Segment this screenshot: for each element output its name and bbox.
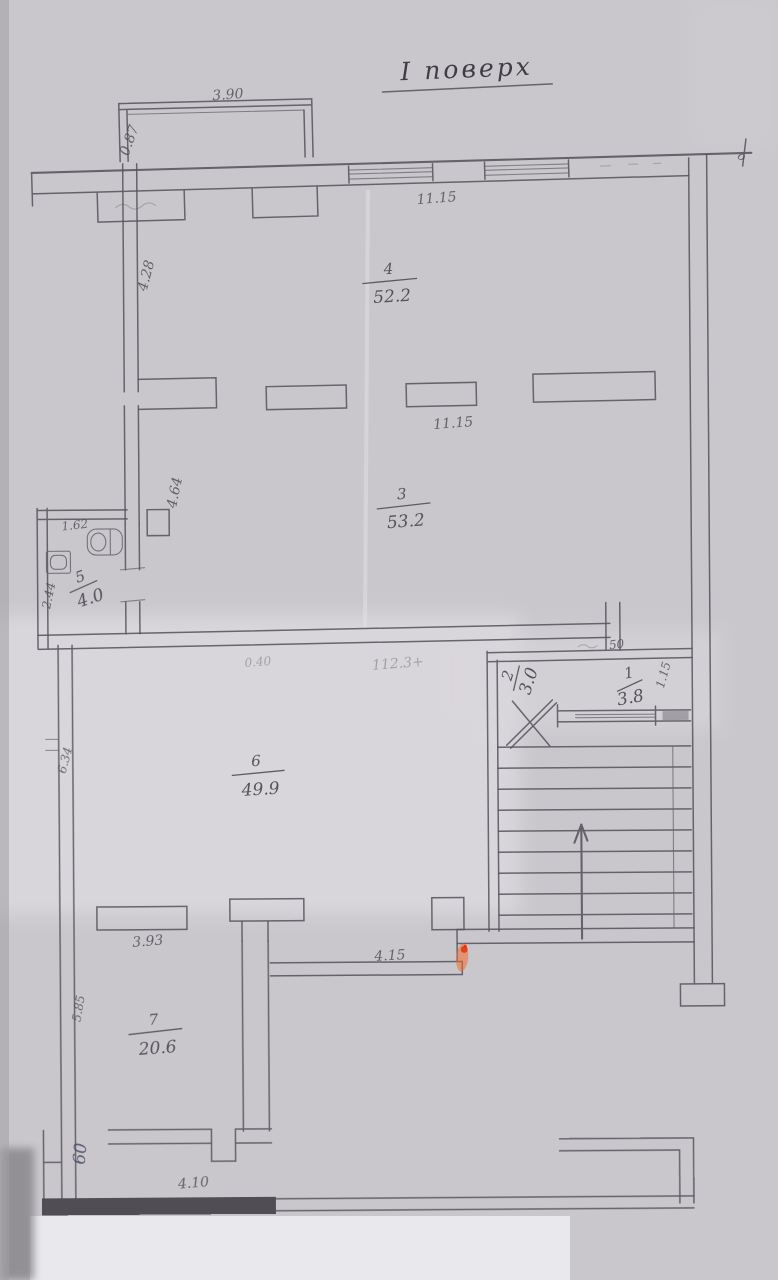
dim-lobby-width: 4.10 [176, 1174, 209, 1192]
dim-balcony-width: 3.90 [212, 86, 244, 104]
dim-mid-wall-run: 11.15 [433, 414, 474, 433]
dim-faint-a: 0.40 [244, 654, 272, 670]
room-3-number: 3 [396, 485, 407, 504]
dim-corridor-width: 4.15 [373, 947, 406, 965]
dim-top-window-run: 11.15 [416, 189, 457, 208]
ink-note: 60 [70, 1142, 92, 1165]
room-4-area: 52.2 [373, 286, 412, 308]
room-6-number: 6 [251, 752, 262, 771]
dim-room7-width: 3.93 [132, 933, 164, 951]
dim-stub-offset: 50 [608, 637, 625, 653]
room-4-number: 4 [382, 260, 394, 279]
page-title: I поверх [399, 52, 534, 87]
room-7-number: 7 [148, 1010, 159, 1029]
dim-wc-width: 1.62 [61, 517, 89, 534]
room-7-area: 20.6 [137, 1037, 177, 1060]
floor-plan-drawing: I поверх 3.90 0.87 [0, 0, 778, 1280]
room-6-area: 49.9 [240, 779, 280, 801]
room-3-area: 53.2 [386, 510, 425, 533]
scanned-floor-plan-page: I поверх 3.90 0.87 [0, 0, 778, 1280]
